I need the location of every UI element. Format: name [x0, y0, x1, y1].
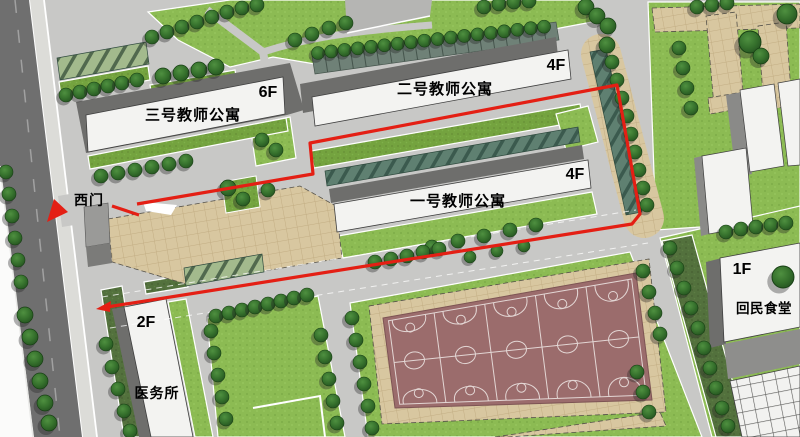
canteen-building [720, 243, 800, 342]
campus-site-plan: 三号教师公寓 6F 二号教师公寓 4F 一号教师公寓 4F 西门 2F 医务所 … [0, 0, 800, 437]
canteen-floors-label: 1F [733, 261, 752, 278]
building3-floors-label: 6F [259, 84, 278, 101]
building1-label: 一号教师公寓 [410, 192, 506, 210]
clinic-floors-label: 2F [137, 314, 156, 331]
gatehouse-shadow [86, 243, 112, 267]
building2-floors-label: 4F [547, 57, 566, 74]
site-plan-svg: 三号教师公寓 6F 二号教师公寓 4F 一号教师公寓 4F 西门 2F 医务所 … [0, 0, 800, 437]
clinic-label: 医务所 [135, 385, 180, 401]
gatehouse [84, 203, 110, 247]
west-gate-label: 西门 [74, 192, 104, 208]
building3-label: 三号教师公寓 [145, 106, 241, 124]
building1-floors-label: 4F [566, 166, 585, 183]
canteen-label: 回民食堂 [736, 300, 792, 316]
ne-building3 [702, 148, 753, 234]
building2-label: 二号教师公寓 [397, 80, 493, 98]
